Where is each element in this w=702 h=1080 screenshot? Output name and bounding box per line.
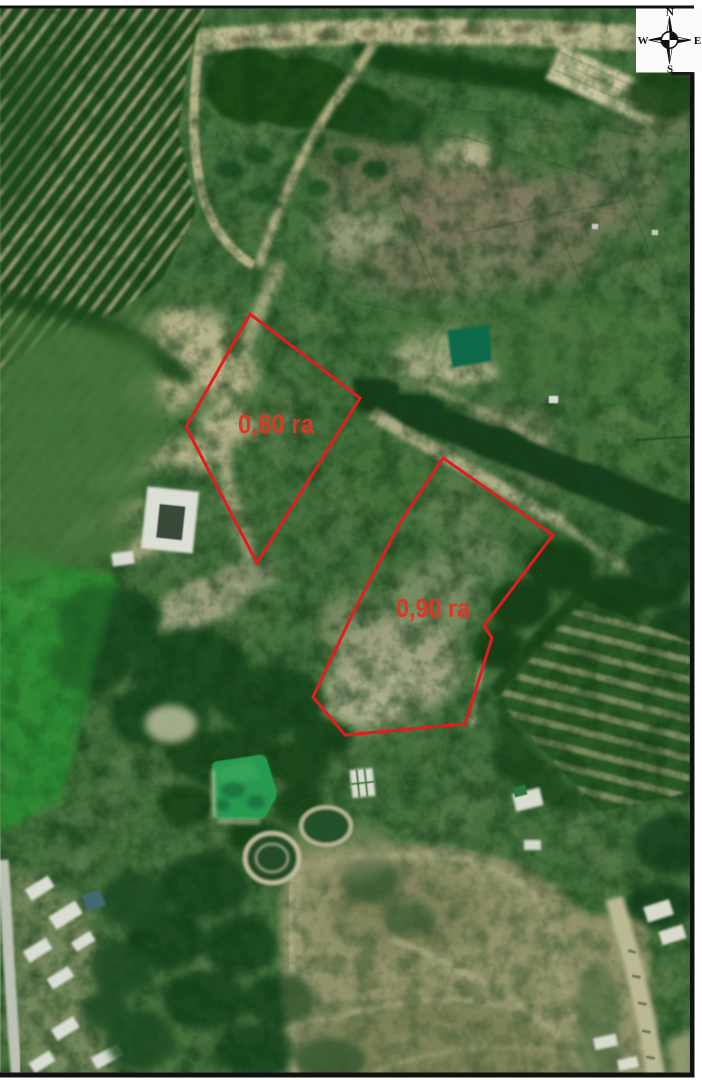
svg-text:W: W [638, 35, 649, 47]
svg-text:N: N [666, 7, 674, 19]
svg-text:E: E [694, 35, 701, 47]
svg-text:0,90 ra: 0,90 ra [396, 593, 470, 623]
svg-text:0,60 ra: 0,60 ra [238, 409, 315, 439]
svg-text:S: S [667, 64, 673, 76]
